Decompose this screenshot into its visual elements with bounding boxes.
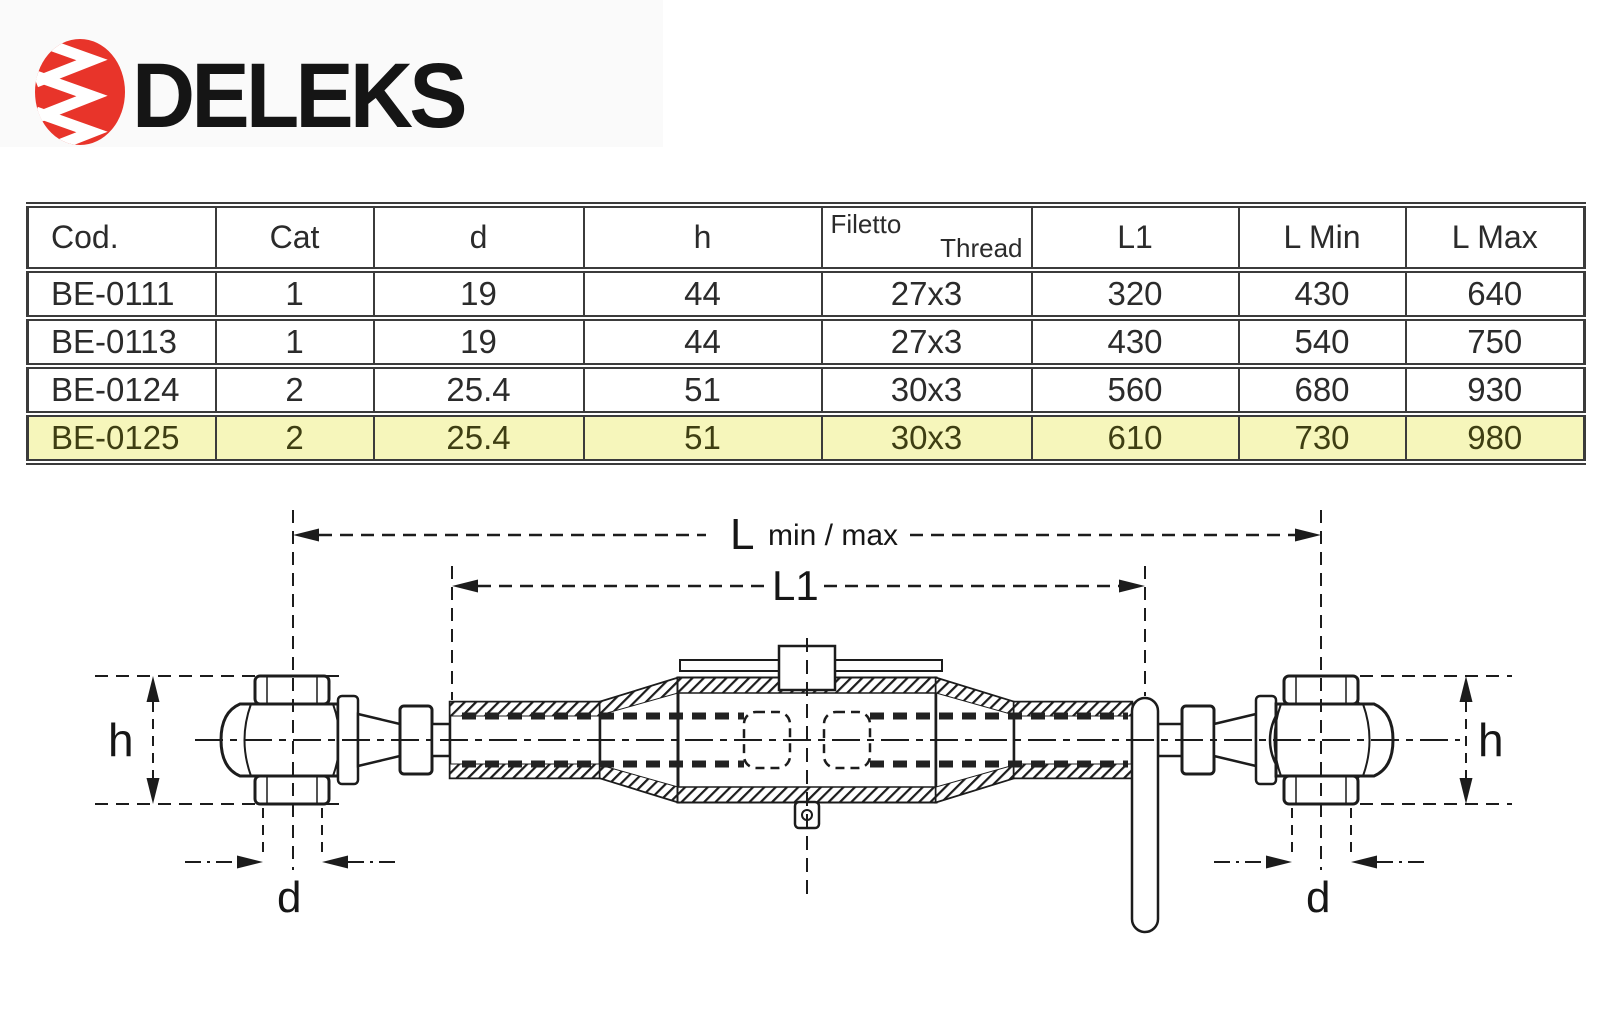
dim-label-l: L: [730, 510, 754, 559]
dim-label-h-right: h: [1478, 714, 1504, 766]
dimension-l1: L1: [452, 562, 1145, 609]
dim-label-d-right: d: [1306, 873, 1330, 922]
dim-label-l-minmax: min / max: [768, 519, 898, 552]
technical-drawing: L min / max L1 h h: [0, 0, 1600, 1013]
dim-label-d-left: d: [277, 873, 301, 922]
dim-label-h-left: h: [108, 714, 134, 766]
dim-label-l1: L1: [772, 562, 819, 609]
locking-lever: [1132, 698, 1158, 932]
dimension-l: L min / max: [293, 510, 1321, 559]
spec-sheet-page: DELEKS Cod. Cat d h Filetto Thread L1: [0, 0, 1600, 1013]
